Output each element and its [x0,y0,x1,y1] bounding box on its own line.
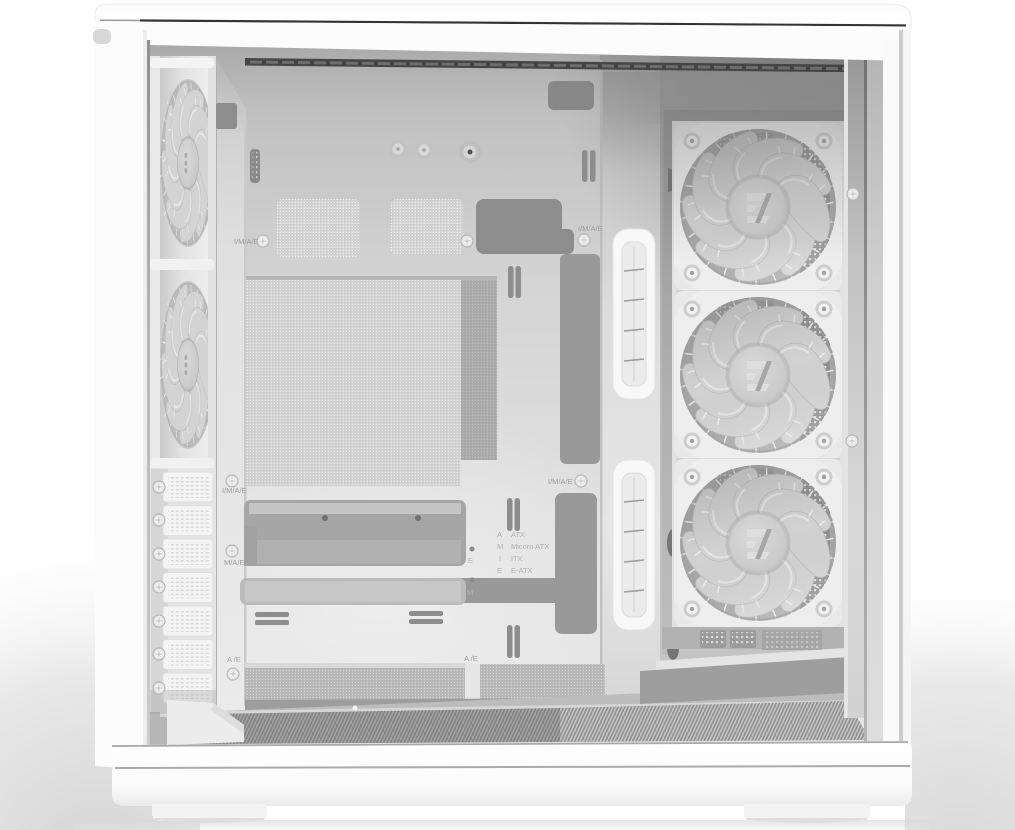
svg-text:I/M/A/E: I/M/A/E [222,486,247,495]
svg-text:A: A [497,530,502,539]
svg-text:M/A/E: M/A/E [224,558,244,567]
svg-text:E: E [497,566,502,575]
svg-text:I: I [499,554,501,563]
svg-text:ATX: ATX [511,530,525,539]
svg-text:M: M [497,542,503,551]
svg-text:I/M/A/E: I/M/A/E [548,477,573,486]
svg-text:I/M/A/E: I/M/A/E [578,224,603,233]
svg-text:E-ATX: E-ATX [511,566,533,575]
svg-text:A /E: A /E [227,655,241,664]
svg-text:E: E [468,556,473,565]
svg-text:ITX: ITX [511,554,523,563]
svg-text:M: M [467,588,473,597]
svg-text:I/M/A/E: I/M/A/E [234,237,259,246]
svg-text:Micoro ATX: Micoro ATX [511,542,549,551]
svg-text:A /E: A /E [464,654,478,663]
